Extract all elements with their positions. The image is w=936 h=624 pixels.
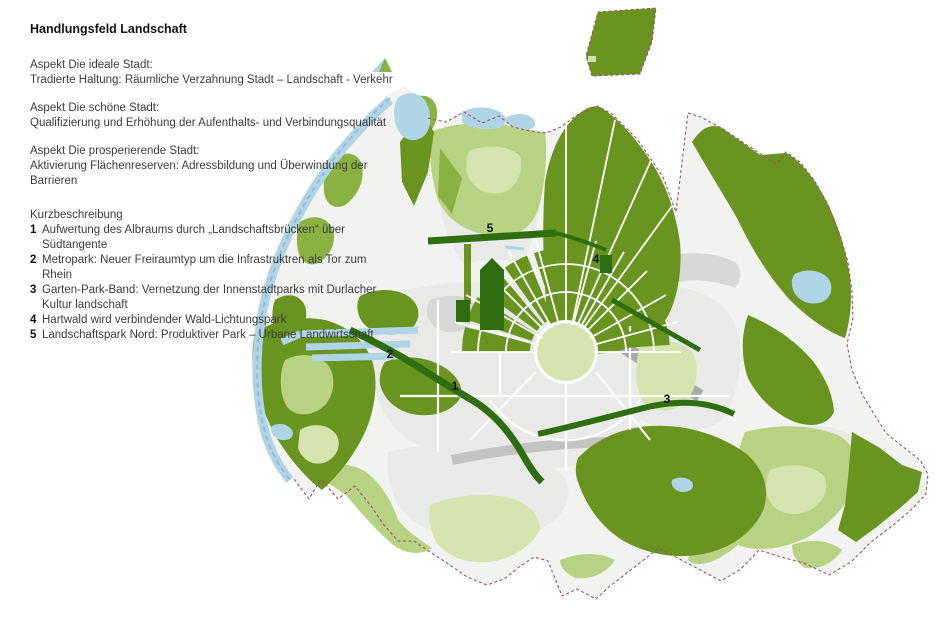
item-number: 2 [30,253,42,283]
page: 1 2 3 4 5 Handlungsfeld Landschaft Aspek… [0,0,936,624]
item-number: 1 [30,223,42,253]
item-text: Aufwertung des Albraums durch „Landschaf… [42,223,396,253]
item-number: 5 [30,328,42,343]
item-text: Metropark: Neuer Freiraumtyp um die Infr… [42,253,396,283]
aspect-ideale-stadt: Aspekt Die ideale Stadt: Tradierte Haltu… [30,58,396,88]
aspect-description: Qualifizierung und Erhöhung der Aufentha… [30,116,396,131]
aspect-description: Aktivierung Flächenreserven: Adressbildu… [30,159,396,189]
page-title: Handlungsfeld Landschaft [30,22,396,37]
item-text: Garten-Park-Band: Vernetzung der Innenst… [42,283,396,313]
list-item: 5 Landschaftspark Nord: Produktiver Park… [30,328,396,343]
kurzbeschreibung-list: 1 Aufwertung des Albraums durch „Landsch… [30,223,396,343]
map-marker-4: 4 [593,252,600,266]
list-item: 4 Hartwald wird verbindender Wald-Lichtu… [30,313,396,328]
aspect-heading: Aspekt Die ideale Stadt: [30,58,396,73]
map-marker-1: 1 [452,379,459,393]
aspect-description: Tradierte Haltung: Räumliche Verzahnung … [30,73,396,88]
item-text: Landschaftspark Nord: Produktiver Park –… [42,328,396,343]
item-number: 3 [30,283,42,313]
legend-panel: Handlungsfeld Landschaft Aspekt Die idea… [30,22,396,343]
aspect-prosperierende-stadt: Aspekt Die prosperierende Stadt: Aktivie… [30,144,396,189]
list-item: 1 Aufwertung des Albraums durch „Landsch… [30,223,396,253]
list-item: 2 Metropark: Neuer Freiraumtyp um die In… [30,253,396,283]
item-text: Hartwald wird verbindender Wald-Lichtung… [42,313,396,328]
item-number: 4 [30,313,42,328]
list-item: 3 Garten-Park-Band: Vernetzung der Innen… [30,283,396,313]
kurzbeschreibung-section: Kurzbeschreibung 1 Aufwertung des Albrau… [30,208,396,343]
city-canal [505,247,524,249]
map-marker-5: 5 [487,221,494,235]
aspect-schoene-stadt: Aspekt Die schöne Stadt: Qualifizierung … [30,101,396,131]
aspect-heading: Aspekt Die prosperierende Stadt: [30,144,396,159]
kurzbeschreibung-heading: Kurzbeschreibung [30,208,396,223]
aspect-heading: Aspekt Die schöne Stadt: [30,101,396,116]
map-marker-2: 2 [387,347,394,361]
map-marker-3: 3 [664,392,671,406]
